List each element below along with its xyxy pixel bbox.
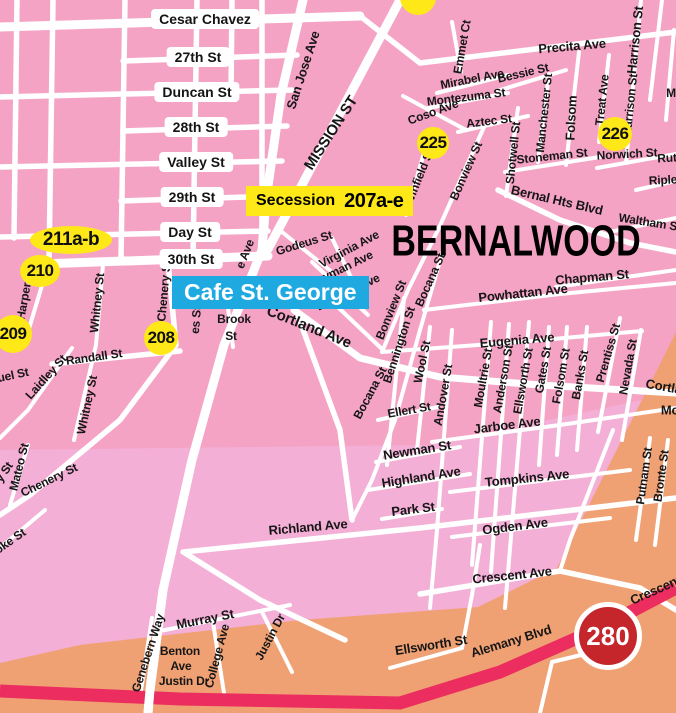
street-label: Cortland Ave — [645, 377, 676, 403]
street-label: Ellsworth St — [394, 633, 468, 657]
street-label: Andover St — [432, 363, 455, 426]
street-label: Whitney St — [75, 374, 99, 435]
street-label: uel St — [0, 366, 30, 384]
street-label: Highland Ave — [381, 464, 462, 489]
street-pill: Duncan St — [154, 82, 239, 102]
street-pill: 30th St — [160, 249, 223, 269]
street-label: Aztec St — [466, 112, 513, 129]
street-label: Jarboe Ave — [473, 414, 541, 435]
street-label: Bonview St — [448, 140, 484, 202]
street-label: Precita Ave — [538, 37, 607, 56]
street-label: Benton — [160, 645, 200, 657]
map-badge: 208 — [144, 321, 178, 355]
street-label: Rut — [657, 152, 676, 165]
street-label: Ogden Ave — [482, 516, 549, 537]
street-label: Justin Dr — [253, 612, 287, 662]
cafe-st-george-banner: Cafe St. George — [172, 276, 369, 309]
map-badge: 226 — [598, 117, 632, 151]
street-label: Moultrie St — [472, 348, 494, 409]
street-pill: Cesar Chavez — [151, 9, 259, 29]
street-label: Tompkins Ave — [484, 467, 569, 489]
street-label: Bronte St — [651, 449, 670, 502]
street-label: Wool St — [412, 340, 433, 385]
street-label: Richland Ave — [268, 517, 348, 537]
street-label: Stoneman St — [516, 146, 588, 165]
highway-280-shield: 280 — [574, 602, 642, 670]
secession-units: 207a-e — [344, 190, 403, 213]
street-label: Banks St — [570, 349, 590, 400]
street-label: Manchester St — [534, 73, 554, 153]
street-pill: Valley St — [159, 152, 233, 172]
street-pill: 28th St — [165, 117, 228, 137]
street-label: Mo — [661, 404, 676, 417]
region-title: BERNALWOOD — [391, 218, 640, 267]
street-label: Cortland Ave — [265, 303, 354, 351]
street-label: Laidley St — [23, 353, 69, 402]
street-label: Crescent Av — [628, 565, 676, 606]
street-label: Prentiss St — [594, 322, 622, 383]
street-label: College Ave — [203, 623, 232, 689]
secession-banner: Secession 207a-e — [246, 186, 413, 216]
street-label: Ave — [171, 660, 192, 672]
street-label: Gates St — [533, 346, 553, 394]
street-label: Emmet Ct — [451, 19, 472, 75]
street-label: St — [225, 330, 237, 342]
map-badge: 225 — [417, 127, 449, 159]
secession-name: Secession — [256, 192, 335, 210]
street-label: Alemany Blvd — [469, 623, 553, 660]
street-label: es St — [189, 306, 203, 335]
map-badge: 211a-b — [30, 226, 112, 254]
street-pill: Day St — [160, 222, 220, 242]
street-pill: 27th St — [167, 47, 230, 67]
street-label: Ellsworth St — [511, 347, 534, 415]
street-label: Nevada St — [617, 338, 639, 395]
street-label: Crescent Ave — [472, 564, 553, 585]
street-label: Newman St — [382, 438, 451, 462]
street-label: e Ave — [234, 238, 256, 270]
street-pill: 29th St — [161, 187, 224, 207]
street-label: Whitney St — [88, 273, 106, 334]
street-label: San Jose Ave — [284, 29, 321, 110]
street-labels-layer: San Jose AveMISSION STEmmet CtPrecita Av… — [0, 0, 676, 713]
street-label: Chenery St — [155, 260, 172, 322]
street-label: Randall St — [65, 347, 123, 367]
street-label: Park St — [391, 500, 436, 518]
street-label: oke St — [0, 526, 28, 556]
bernalwood-map: San Jose AveMISSION STEmmet CtPrecita Av… — [0, 0, 676, 713]
street-label: Chenery St — [19, 461, 79, 499]
map-badge: 209 — [0, 315, 32, 353]
street-label: MISSION ST — [302, 93, 361, 172]
street-label: Brook — [217, 313, 251, 325]
street-label: Bernal Hts Blvd — [510, 183, 604, 217]
map-badge — [400, 0, 436, 15]
street-label: Harrison St — [625, 6, 645, 75]
street-label: Ellert St — [387, 400, 432, 419]
map-badge: 210 — [20, 255, 60, 287]
street-label: Powhattan Ave — [478, 282, 568, 304]
street-label: Folsom — [563, 95, 578, 141]
street-label: M — [666, 87, 676, 99]
street-label: Riple — [649, 173, 676, 186]
